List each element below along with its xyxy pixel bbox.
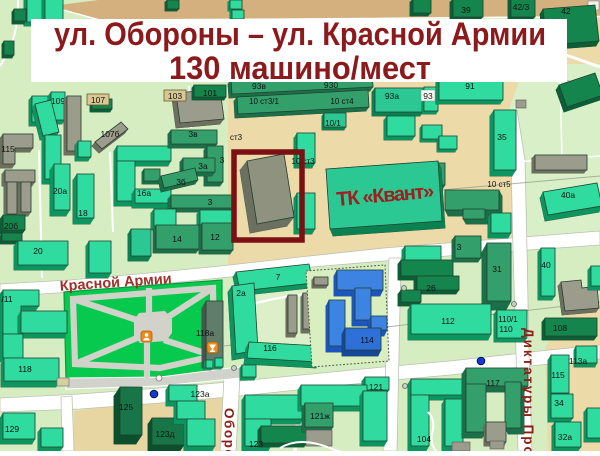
svg-text:39: 39 (461, 5, 471, 15)
svg-text:10/1: 10/1 (325, 119, 341, 128)
svg-text:130 машино/мест: 130 машино/мест (169, 50, 431, 86)
svg-text:3: 3 (220, 155, 225, 165)
svg-text:35: 35 (497, 132, 507, 142)
svg-text:ул. Обороны – ул. Красной Арми: ул. Обороны – ул. Красной Армии (54, 16, 546, 52)
svg-text:110: 110 (499, 324, 513, 334)
svg-text:93: 93 (423, 91, 433, 101)
svg-text:Оборо: Оборо (222, 408, 237, 451)
svg-text:123д: 123д (155, 429, 174, 439)
svg-text:42/3: 42/3 (513, 2, 530, 12)
svg-text:3б: 3б (176, 177, 186, 187)
svg-text:3: 3 (457, 242, 462, 252)
svg-text:109: 109 (51, 96, 65, 106)
svg-text:101: 101 (203, 88, 217, 98)
svg-text:118: 118 (18, 364, 32, 374)
svg-text:ст3: ст3 (230, 133, 243, 142)
svg-text:20: 20 (33, 246, 43, 256)
svg-text:125: 125 (119, 402, 133, 412)
svg-text:108: 108 (553, 323, 567, 333)
svg-text:103: 103 (168, 91, 182, 101)
svg-text:10 ст5: 10 ст5 (487, 180, 511, 189)
svg-text:123: 123 (249, 439, 263, 449)
svg-text:12: 12 (210, 232, 220, 242)
svg-text:/11: /11 (1, 294, 12, 304)
svg-text:42: 42 (561, 6, 571, 16)
svg-text:121: 121 (369, 382, 383, 392)
svg-text:114: 114 (360, 335, 374, 345)
svg-text:115: 115 (551, 370, 565, 380)
svg-text:107: 107 (91, 95, 105, 105)
svg-text:117: 117 (486, 378, 500, 388)
svg-text:32а: 32а (558, 432, 572, 442)
svg-text:113а: 113а (569, 356, 588, 366)
svg-text:18: 18 (78, 208, 88, 218)
svg-text:3в: 3в (188, 129, 198, 139)
svg-text:110/1: 110/1 (498, 315, 518, 324)
svg-text:20б: 20б (4, 221, 18, 231)
svg-text:Диктатуры Прол: Диктатуры Прол (521, 328, 536, 451)
svg-text:107б: 107б (100, 129, 119, 139)
svg-text:31: 31 (492, 264, 502, 274)
svg-text:40а: 40а (561, 190, 575, 200)
svg-text:7: 7 (276, 272, 281, 282)
svg-text:3а: 3а (198, 161, 208, 171)
svg-text:93а: 93а (385, 91, 399, 101)
svg-text:3: 3 (208, 197, 213, 207)
svg-text:10 ст3/1: 10 ст3/1 (249, 97, 279, 106)
svg-text:20а: 20а (53, 186, 67, 196)
svg-text:104: 104 (417, 434, 431, 444)
svg-text:14: 14 (172, 234, 182, 244)
svg-text:121ж: 121ж (310, 411, 330, 421)
svg-text:112: 112 (441, 316, 455, 326)
svg-text:40: 40 (541, 260, 551, 270)
svg-text:16а: 16а (137, 188, 151, 198)
svg-text:115: 115 (1, 144, 15, 154)
svg-text:129: 129 (5, 424, 19, 434)
svg-text:118а: 118а (196, 328, 215, 338)
svg-text:10 ст4: 10 ст4 (330, 97, 354, 106)
svg-text:34: 34 (554, 398, 564, 408)
svg-text:26: 26 (426, 283, 436, 293)
svg-text:2а: 2а (236, 288, 246, 298)
svg-text:91: 91 (465, 81, 475, 91)
svg-text:116: 116 (263, 343, 277, 353)
svg-text:123а: 123а (191, 389, 210, 399)
